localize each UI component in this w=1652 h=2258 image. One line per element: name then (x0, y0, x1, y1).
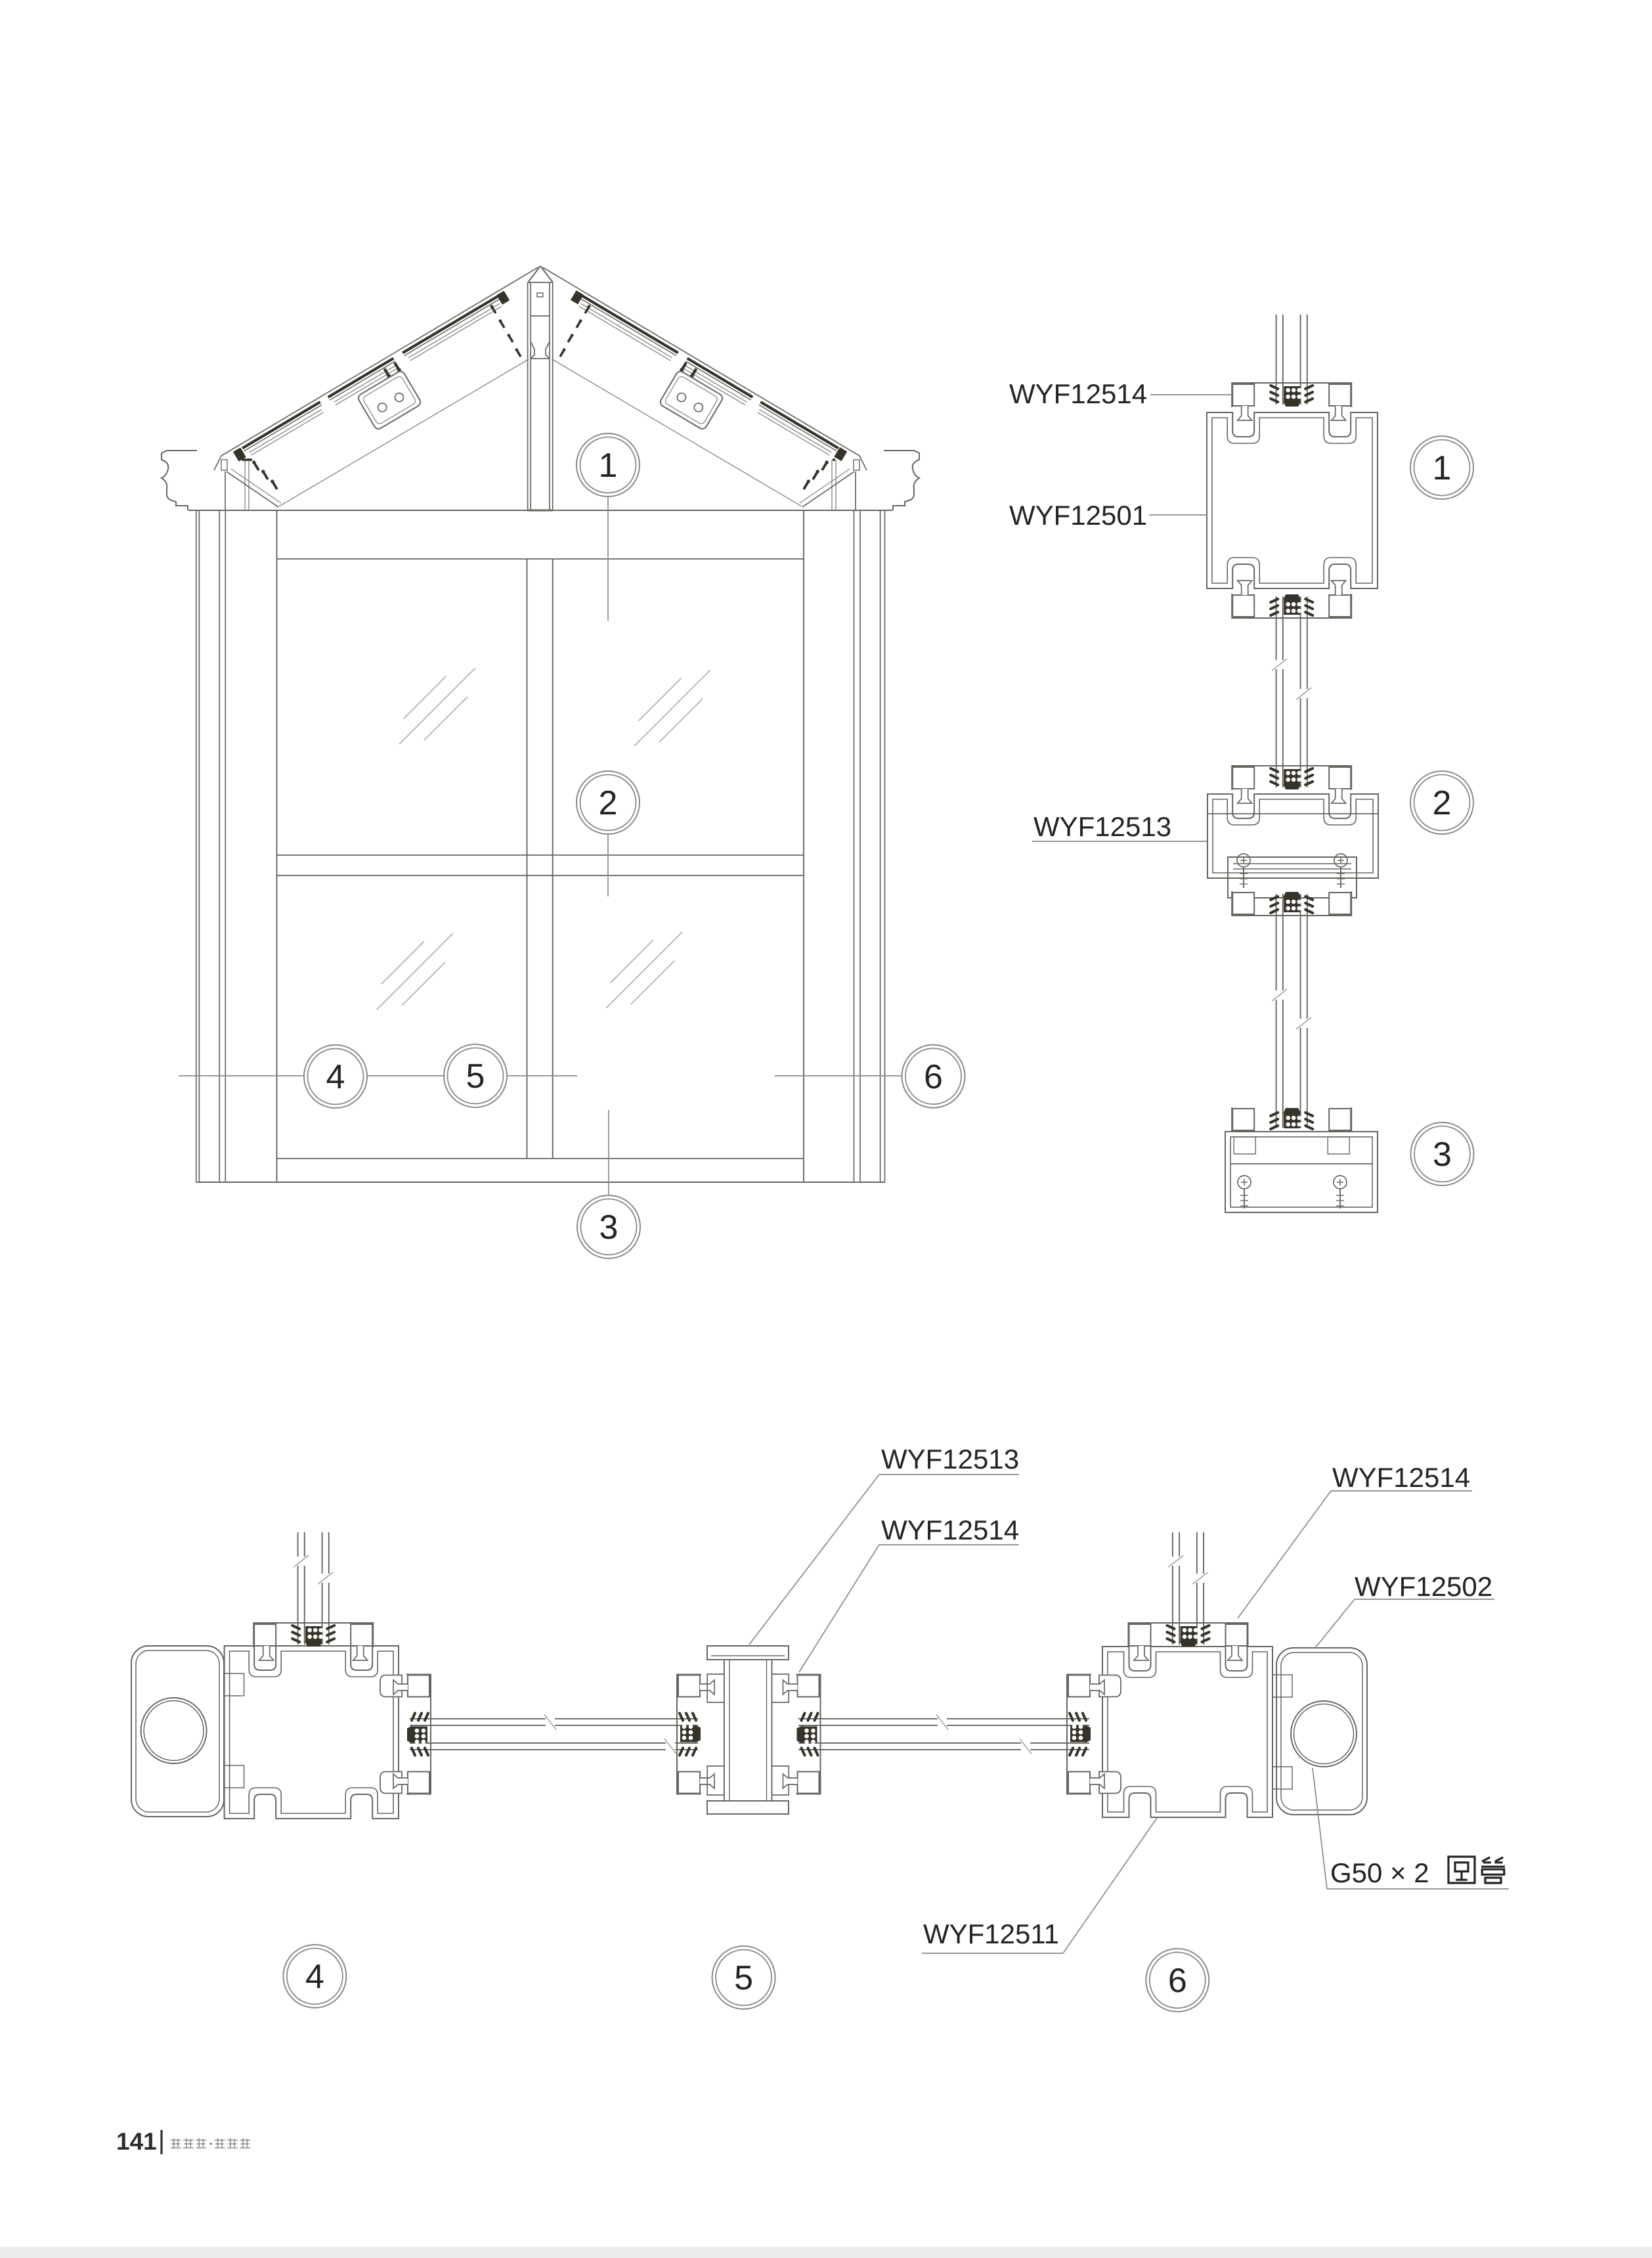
svg-text:4: 4 (305, 1958, 324, 1996)
svg-text:3: 3 (1433, 1136, 1452, 1174)
svg-text:WYF12502: WYF12502 (1355, 1571, 1492, 1602)
svg-text:3: 3 (599, 1208, 619, 1247)
svg-text:1: 1 (1433, 449, 1452, 487)
svg-text:G50 × 2: G50 × 2 (1330, 1857, 1429, 1888)
svg-text:WYF12513: WYF12513 (1033, 811, 1171, 842)
svg-text:2: 2 (599, 784, 618, 822)
svg-text:4: 4 (326, 1058, 345, 1096)
svg-text:6: 6 (924, 1058, 943, 1096)
svg-text:WYF12514: WYF12514 (1332, 1462, 1470, 1493)
svg-text:5: 5 (466, 1057, 485, 1096)
svg-text:6: 6 (1168, 1962, 1187, 2000)
svg-text:2: 2 (1433, 784, 1452, 822)
svg-text:141: 141 (116, 2128, 157, 2155)
svg-text:5: 5 (734, 1959, 753, 1997)
svg-text:WYF12513: WYF12513 (881, 1444, 1019, 1474)
svg-text:WYF12501: WYF12501 (1009, 500, 1147, 531)
svg-text:WYF12514: WYF12514 (1009, 378, 1147, 409)
svg-text:WYF12511: WYF12511 (923, 1918, 1059, 1949)
svg-text:1: 1 (599, 447, 618, 485)
svg-text:WYF12514: WYF12514 (881, 1515, 1019, 1545)
